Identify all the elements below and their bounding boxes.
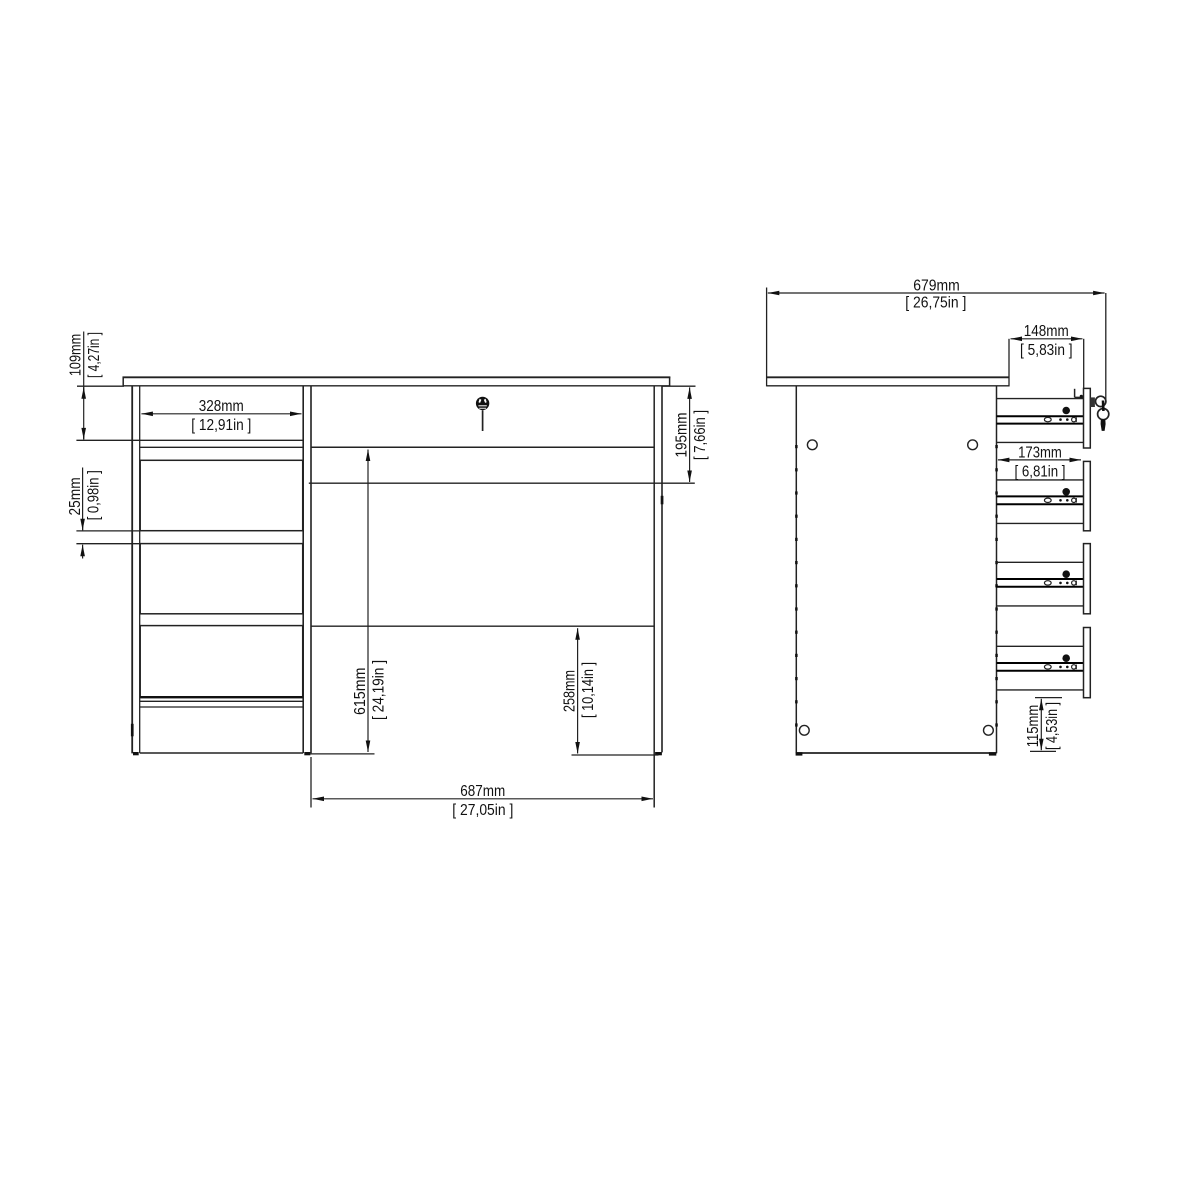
svg-text:115mm: 115mm	[1025, 705, 1042, 748]
svg-text:[ 24,19in ]: [ 24,19in ]	[371, 660, 388, 720]
svg-text:148mm: 148mm	[1024, 323, 1069, 340]
svg-text:[ 4,53in ]: [ 4,53in ]	[1044, 702, 1061, 750]
svg-text:[ 12,91in ]: [ 12,91in ]	[191, 417, 251, 434]
svg-text:[ 27,05in ]: [ 27,05in ]	[452, 802, 513, 819]
svg-text:[ 6,81in ]: [ 6,81in ]	[1015, 463, 1066, 480]
svg-text:687mm: 687mm	[460, 783, 505, 800]
svg-text:[ 10,14in ]: [ 10,14in ]	[580, 662, 597, 718]
svg-text:25mm: 25mm	[67, 477, 84, 515]
svg-text:615mm: 615mm	[352, 668, 369, 716]
svg-text:[ 4,27in ]: [ 4,27in ]	[86, 332, 103, 378]
svg-text:679mm: 679mm	[913, 277, 960, 294]
svg-text:195mm: 195mm	[673, 413, 690, 458]
svg-text:173mm: 173mm	[1018, 444, 1062, 461]
svg-text:328mm: 328mm	[199, 398, 244, 415]
svg-text:[ 26,75in ]: [ 26,75in ]	[905, 294, 966, 311]
svg-text:[ 5,83in ]: [ 5,83in ]	[1020, 342, 1073, 359]
svg-text:258mm: 258mm	[561, 670, 578, 712]
svg-text:109mm: 109mm	[68, 334, 85, 376]
svg-text:[ 0,98in ]: [ 0,98in ]	[86, 470, 103, 520]
svg-text:[ 7,66in ]: [ 7,66in ]	[692, 410, 709, 460]
